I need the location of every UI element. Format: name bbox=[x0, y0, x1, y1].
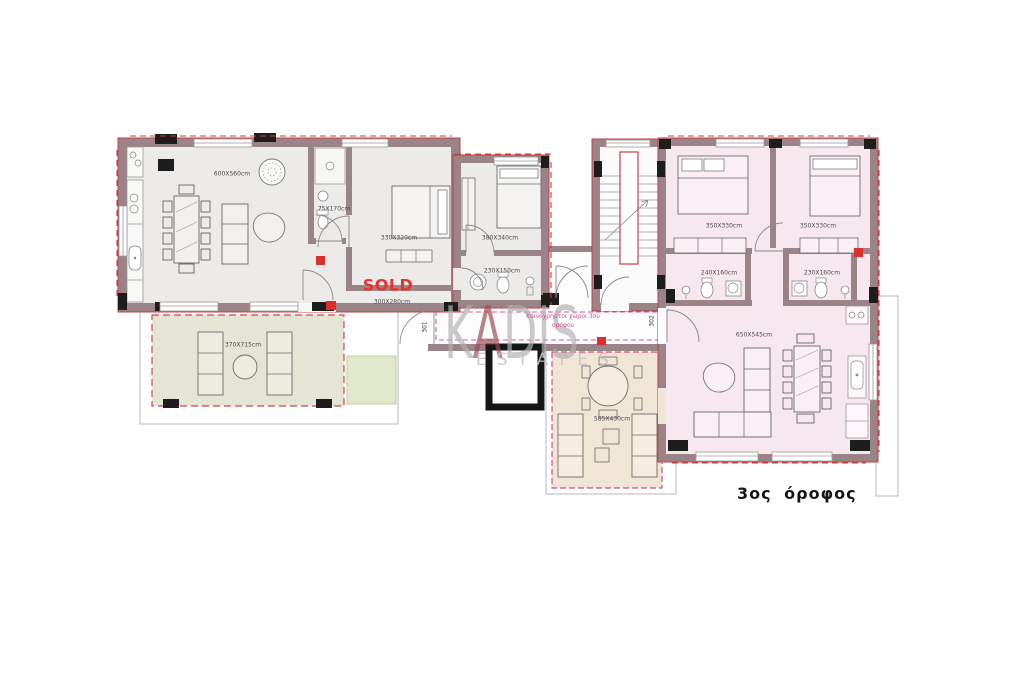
dim-left-hall: 300X280cm bbox=[374, 299, 410, 306]
door-number-301: 301 bbox=[422, 321, 429, 332]
dim-left-bedroom-1: 330X320cm bbox=[381, 235, 417, 242]
dim-left-bathroom-main: 230X150cm bbox=[484, 268, 520, 275]
garden-patch bbox=[347, 356, 396, 404]
dim-left-balcony: 370X715cm bbox=[225, 342, 261, 349]
sold-badge: SOLD bbox=[363, 276, 414, 295]
watermark-estates: ESTATES bbox=[476, 350, 619, 370]
stairwell bbox=[592, 139, 666, 311]
armchair-blob bbox=[253, 213, 284, 242]
dim-left-bathroom-small: 75X170cm bbox=[318, 206, 350, 213]
bed-right-2 bbox=[810, 156, 860, 216]
dim-right-living: 650X545cm bbox=[736, 332, 772, 339]
watermark-k: K bbox=[444, 291, 472, 375]
dim-right-bedroom-1: 350X330cm bbox=[706, 223, 742, 230]
dim-left-living: 600X560cm bbox=[214, 171, 250, 178]
living-sofa bbox=[222, 204, 248, 264]
plant bbox=[259, 159, 285, 185]
door-number-302: 302 bbox=[649, 315, 656, 326]
common-area-label-line1: Κοινόχρηστοι χώροι 3ου bbox=[526, 312, 600, 321]
armchair-blob-right bbox=[703, 363, 734, 392]
balcony-sofa-left bbox=[198, 332, 223, 395]
closet-right-2 bbox=[800, 238, 858, 253]
dim-right-balcony: 585X430cm bbox=[594, 416, 630, 423]
kitchen-counter bbox=[127, 147, 143, 302]
right-apartment bbox=[658, 138, 878, 462]
dim-right-bathroom-1: 240X160cm bbox=[701, 270, 737, 277]
balcony-sofa-right bbox=[267, 332, 292, 395]
bed-right-1 bbox=[678, 156, 748, 214]
dim-left-bedroom-2: 380X340cm bbox=[482, 235, 518, 242]
closet-right-1 bbox=[674, 238, 746, 253]
balcony-round-table bbox=[233, 355, 257, 379]
common-area-label: Κοινόχρηστοι χώροι 3ου ορόφου bbox=[526, 312, 600, 330]
left-apartment bbox=[118, 138, 549, 312]
floor-title: 3ος όροφος bbox=[737, 484, 857, 503]
common-area-label-line2: ορόφου bbox=[526, 321, 600, 330]
dim-right-bedroom-2: 350X330cm bbox=[800, 223, 836, 230]
dim-right-bathroom-2: 230X160cm bbox=[804, 270, 840, 277]
floor-plan-canvas: KADIS ESTATES 600X560cm 75X170cm 330X320… bbox=[0, 0, 1024, 678]
